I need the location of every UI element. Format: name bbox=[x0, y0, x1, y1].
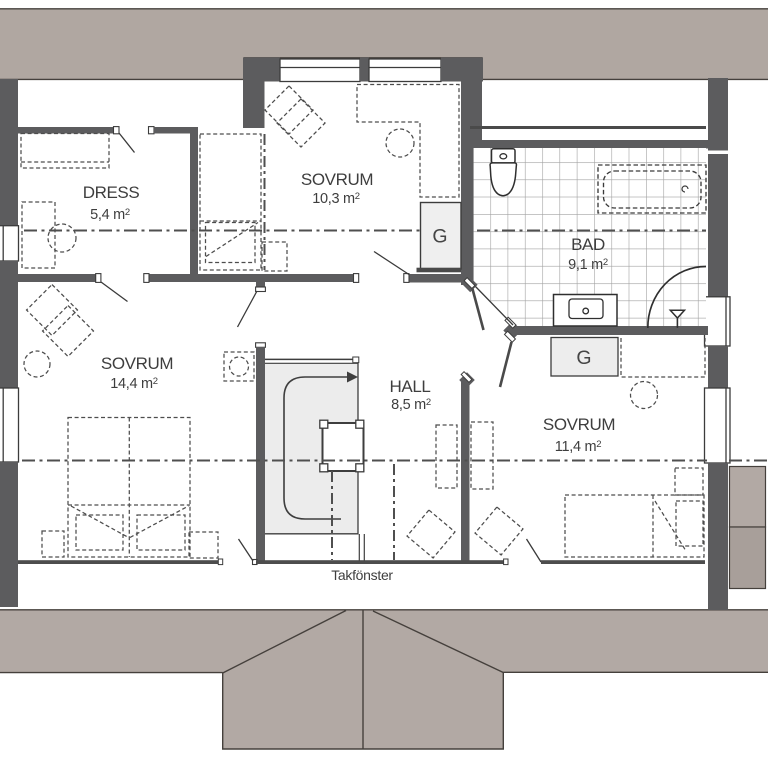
svg-text:HALL: HALL bbox=[390, 377, 431, 396]
svg-text:10,3 m2: 10,3 m2 bbox=[312, 191, 360, 207]
svg-text:SOVRUM: SOVRUM bbox=[101, 354, 173, 373]
svg-text:5,4 m2: 5,4 m2 bbox=[90, 207, 130, 223]
svg-text:Takfönster: Takfönster bbox=[331, 567, 393, 583]
svg-text:DRESS: DRESS bbox=[83, 183, 140, 202]
svg-text:SOVRUM: SOVRUM bbox=[543, 415, 615, 434]
svg-text:SOVRUM: SOVRUM bbox=[301, 170, 373, 189]
svg-text:14,4 m2: 14,4 m2 bbox=[110, 376, 158, 392]
svg-text:BAD: BAD bbox=[571, 235, 605, 254]
svg-text:8,5 m2: 8,5 m2 bbox=[391, 397, 431, 413]
svg-text:9,1 m2: 9,1 m2 bbox=[568, 257, 608, 273]
svg-text:G: G bbox=[432, 226, 447, 248]
svg-text:11,4 m2: 11,4 m2 bbox=[555, 439, 601, 455]
svg-text:G: G bbox=[576, 347, 591, 369]
